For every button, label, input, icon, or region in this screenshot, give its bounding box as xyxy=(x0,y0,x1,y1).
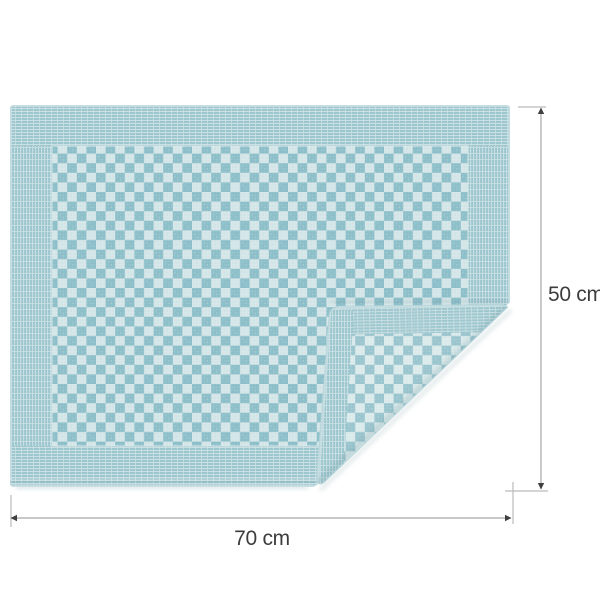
width-dimension: 70 cm xyxy=(11,482,514,550)
height-label: 50 cm xyxy=(548,283,600,306)
arrow-right-icon xyxy=(505,515,512,521)
arrow-up-icon xyxy=(538,108,544,115)
towel-illustration: 50 cm 70 cm xyxy=(0,0,600,600)
weave-texture-overlay xyxy=(10,105,510,487)
product-dimension-diagram: 50 cm 70 cm xyxy=(0,0,600,600)
width-label: 70 cm xyxy=(234,527,290,550)
height-dimension: 50 cm xyxy=(505,107,600,491)
arrow-down-icon xyxy=(538,483,544,490)
